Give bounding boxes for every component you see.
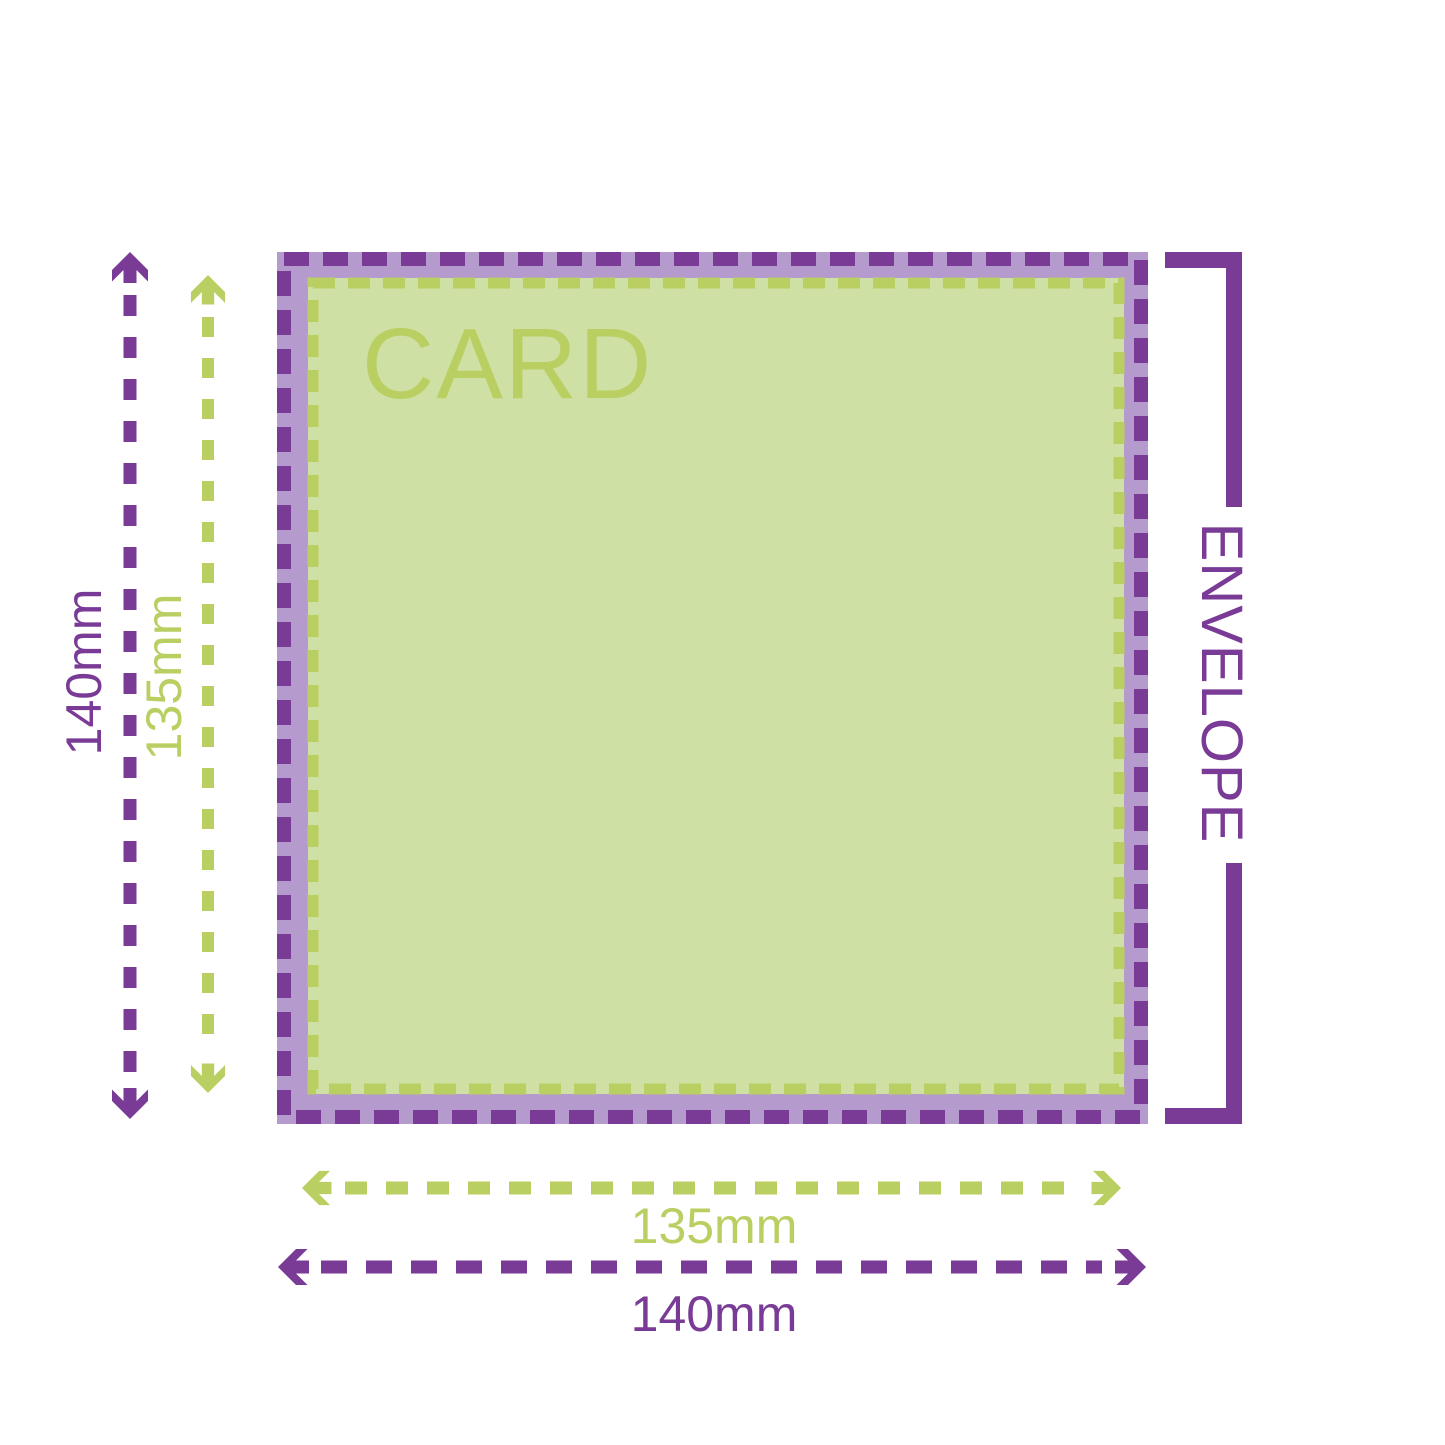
card-width-label: 135mm bbox=[631, 1201, 798, 1251]
envelope-height-label: 140mm bbox=[59, 589, 109, 756]
card-height-arrow bbox=[191, 275, 225, 1093]
card-label: CARD bbox=[362, 314, 653, 414]
card-height-label: 135mm bbox=[139, 594, 189, 761]
envelope-label: ENVELOPE bbox=[1192, 523, 1250, 844]
envelope-width-label: 140mm bbox=[631, 1289, 798, 1339]
card-envelope-size-diagram: CARD ENVELOPE 140mm 135mm 135mm 140mm bbox=[0, 0, 1445, 1445]
envelope-width-arrow bbox=[278, 1249, 1146, 1285]
